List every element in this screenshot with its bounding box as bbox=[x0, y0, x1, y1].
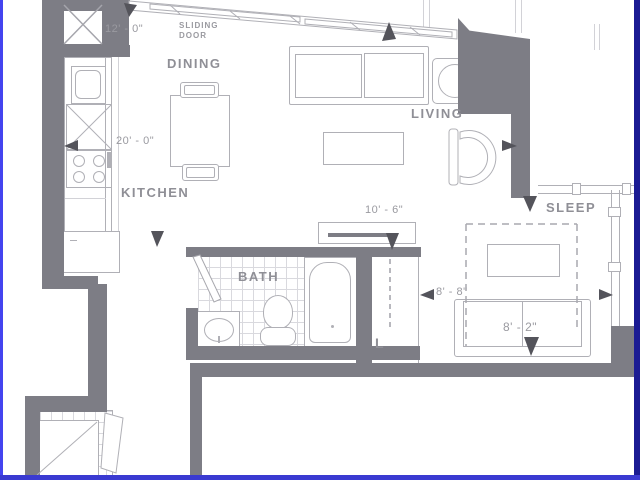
bathtub-drain bbox=[331, 325, 334, 328]
kitchen-sink-basin bbox=[75, 70, 101, 99]
wall-southeast-corner bbox=[611, 326, 634, 375]
room-label-bath: BATH bbox=[238, 269, 279, 284]
curved-chair bbox=[449, 129, 496, 185]
wall-bath-top bbox=[186, 247, 421, 257]
fridge bbox=[63, 231, 120, 273]
sofa-cushion bbox=[295, 54, 362, 98]
balcony-divider-line bbox=[521, 0, 522, 33]
room-label-sleep: SLEEP bbox=[546, 200, 596, 215]
toilet-tank bbox=[260, 327, 296, 346]
dimension-balcony: 12' - 0" bbox=[105, 23, 143, 35]
dimension-sleep-width: 8' - 8" bbox=[436, 286, 468, 298]
window-mullion bbox=[622, 183, 631, 195]
balcony-divider-line bbox=[599, 24, 600, 50]
bathtub-basin bbox=[309, 262, 351, 343]
dimension-hall-closet: 10' - 6" bbox=[365, 204, 403, 216]
burner bbox=[93, 155, 105, 167]
wall-west bbox=[42, 0, 64, 289]
scan-border-bottom bbox=[0, 475, 640, 480]
arrow-sliding-door-up bbox=[382, 22, 396, 41]
hall-console-rail bbox=[328, 233, 394, 237]
scan-border-left bbox=[0, 0, 3, 480]
wall-living-east bbox=[458, 29, 530, 198]
room-label-laundry: L bbox=[375, 335, 385, 351]
window-mullion bbox=[608, 207, 621, 217]
sliding-door-note: SLIDING DOOR bbox=[179, 21, 233, 41]
room-label-living: LIVING bbox=[411, 106, 463, 121]
coffee-table bbox=[323, 132, 404, 165]
burner bbox=[73, 171, 85, 183]
scan-border-right bbox=[634, 0, 640, 480]
wall-shower-left bbox=[25, 396, 40, 480]
dresser bbox=[487, 244, 560, 277]
balcony-divider-line bbox=[594, 24, 595, 50]
arrow-entry-down bbox=[151, 231, 164, 247]
arrow-8-8-left bbox=[420, 289, 434, 300]
wall-west-lower bbox=[88, 284, 107, 402]
wall-south-stub bbox=[190, 366, 202, 480]
balcony-divider-line bbox=[515, 0, 516, 33]
stove bbox=[66, 150, 112, 188]
dining-chair-bottom-back bbox=[186, 167, 215, 178]
window-mullion bbox=[572, 183, 581, 195]
dining-table bbox=[170, 95, 230, 167]
arrow-20ft-right bbox=[502, 140, 517, 151]
room-label-dining: DINING bbox=[167, 56, 222, 71]
dishwasher bbox=[66, 104, 112, 150]
dimension-bed-width: 8' - 2" bbox=[503, 320, 537, 334]
room-label-kitchen: KITCHEN bbox=[121, 185, 189, 200]
burner bbox=[73, 155, 85, 167]
dining-chair-top-back bbox=[184, 85, 215, 95]
sofa-cushion bbox=[364, 53, 424, 98]
counter-divider bbox=[65, 198, 106, 199]
window-mullion bbox=[608, 262, 621, 272]
wall-south bbox=[190, 363, 634, 377]
floor-plan: DINING KITCHEN LIVING SLEEP BATH L SLIDI… bbox=[0, 0, 640, 480]
bath-sink-faucet bbox=[218, 336, 220, 343]
balcony-divider-line bbox=[429, 0, 430, 28]
wall-slant-cap bbox=[458, 18, 478, 40]
fridge-door-tick bbox=[70, 240, 77, 241]
balcony-divider-line bbox=[423, 0, 424, 28]
oven-handle bbox=[107, 152, 112, 168]
arrow-wall-end-down bbox=[523, 196, 537, 212]
armchair-seat bbox=[438, 64, 472, 98]
shower-pan bbox=[35, 420, 99, 478]
toilet-bowl bbox=[263, 295, 293, 329]
dimension-unit-width: 20' - 0" bbox=[116, 135, 154, 147]
burner bbox=[93, 171, 105, 183]
